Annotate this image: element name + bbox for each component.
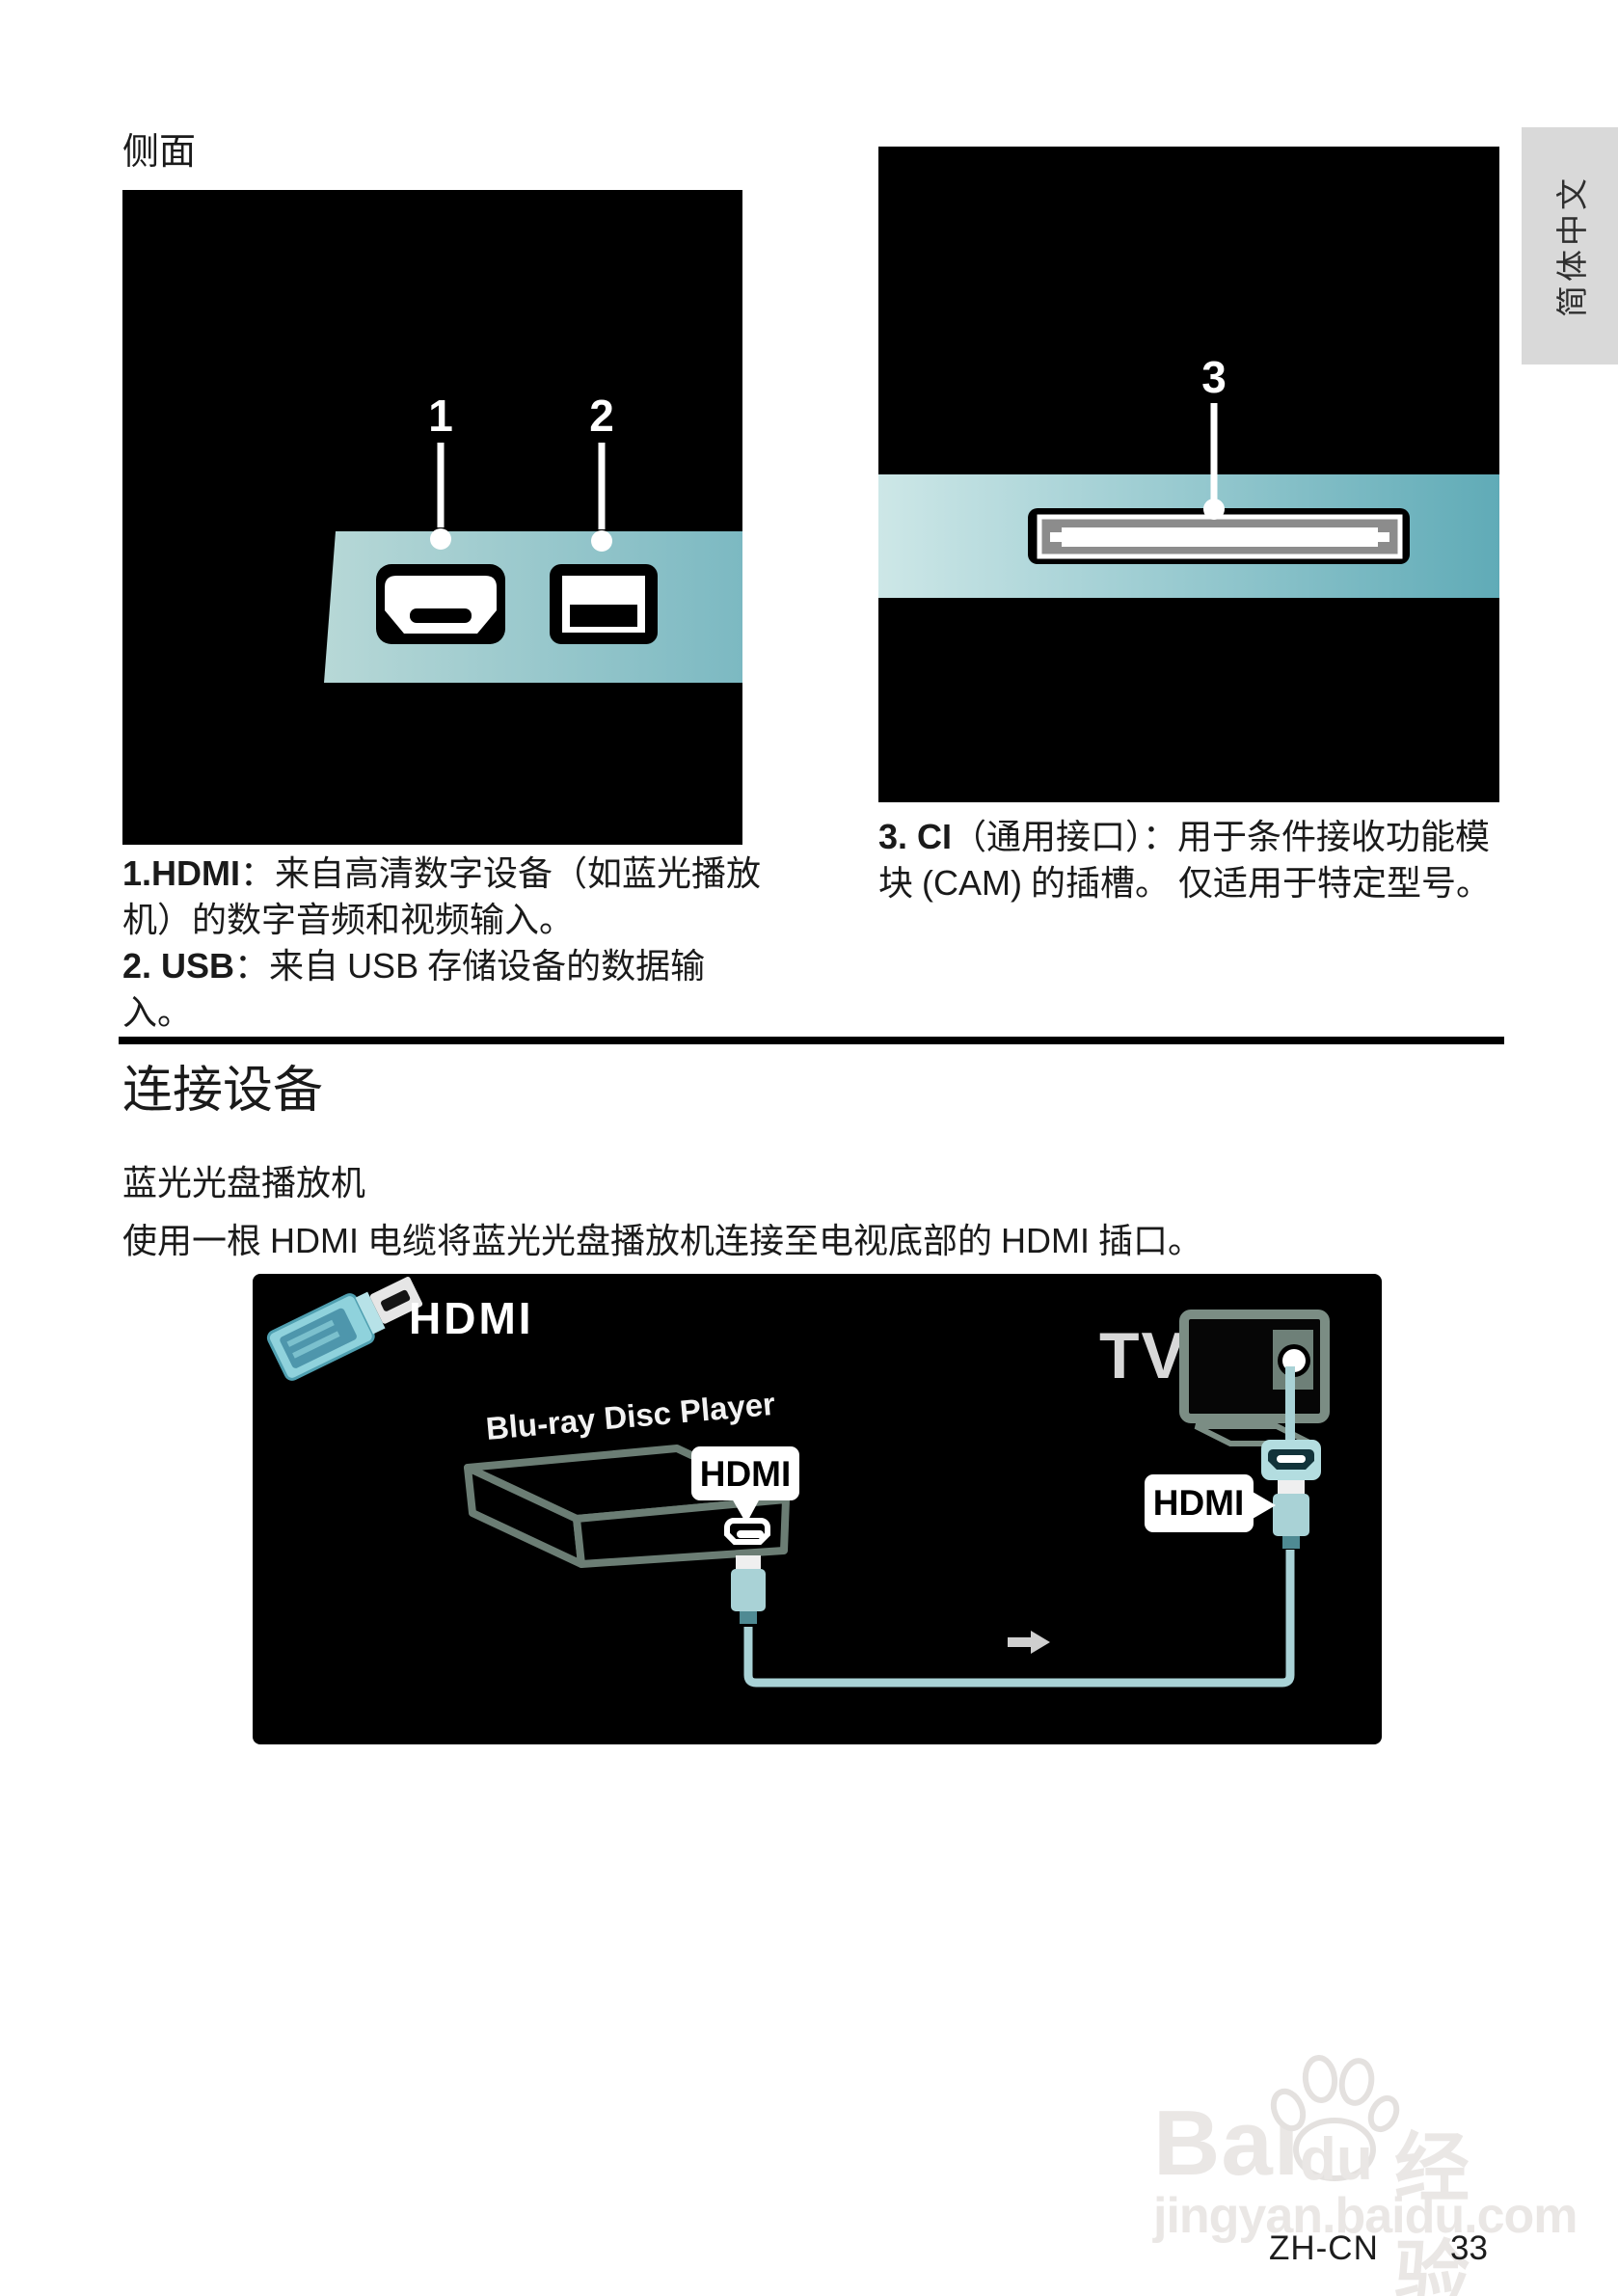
- side-connectors-right-diagram: 3: [878, 147, 1499, 802]
- desc-line: 机）的数字音频和视频输入。: [122, 897, 767, 943]
- svg-text:HDMI: HDMI: [700, 1454, 792, 1494]
- svg-text:1: 1: [428, 391, 453, 441]
- svg-text:HDMI: HDMI: [1153, 1483, 1245, 1523]
- desc-line: 1.HDMI：来自高清数字设备（如蓝光播放: [122, 851, 767, 897]
- desc-line: 3. CI（通用接口）：用于条件接收功能模: [878, 814, 1507, 860]
- section-title: 连接设备: [122, 1049, 323, 1121]
- subsection-title: 蓝光光盘播放机: [122, 1155, 365, 1205]
- watermark: Bai du 经验 jingyan.baidu.com: [1153, 2052, 1539, 2245]
- tv-cable-segment: [1285, 1366, 1295, 1442]
- language-tab-label: 简体中文: [1547, 175, 1593, 317]
- side-connectors-left-diagram: 1 2: [122, 190, 742, 845]
- tv-hdmi-connector: [1261, 1440, 1321, 1480]
- svg-text:3: 3: [1201, 352, 1227, 402]
- player-hdmi-port-icon: [727, 1521, 768, 1542]
- tv-label: TV: [1099, 1319, 1187, 1392]
- usb-port-icon: [550, 564, 658, 644]
- section-divider: [119, 1037, 1504, 1044]
- footer-language-code: ZH-CN: [1269, 2229, 1379, 2268]
- instruction-text: 使用一根 HDMI 电缆将蓝光光盘播放机连接至电视底部的 HDMI 插口。: [122, 1213, 1202, 1263]
- bluray-connection-diagram: HDMI Blu-ray Disc Player HDMI: [253, 1274, 1382, 1744]
- diagram-hdmi-title: HDMI: [409, 1293, 534, 1343]
- manual-page: 侧面 1 2: [0, 0, 1618, 2296]
- diagram-background: [122, 190, 742, 845]
- hdmi-port-icon: [376, 564, 505, 644]
- right-connector-description: 3. CI（通用接口）：用于条件接收功能模 块 (CAM) 的插槽。 仅适用于特…: [878, 814, 1507, 906]
- svg-text:2: 2: [589, 391, 614, 441]
- language-tab: 简体中文: [1522, 127, 1618, 365]
- left-connector-description: 1.HDMI：来自高清数字设备（如蓝光播放 机）的数字音频和视频输入。 2. U…: [122, 851, 767, 1036]
- footer-page-number: 33: [1450, 2229, 1488, 2268]
- desc-line: 2. USB：来自 USB 存储设备的数据输入。: [122, 943, 767, 1036]
- desc-line: 块 (CAM) 的插槽。 仅适用于特定型号。: [878, 860, 1507, 906]
- side-section-label: 侧面: [122, 122, 196, 175]
- watermark-du: du: [1300, 2125, 1373, 2194]
